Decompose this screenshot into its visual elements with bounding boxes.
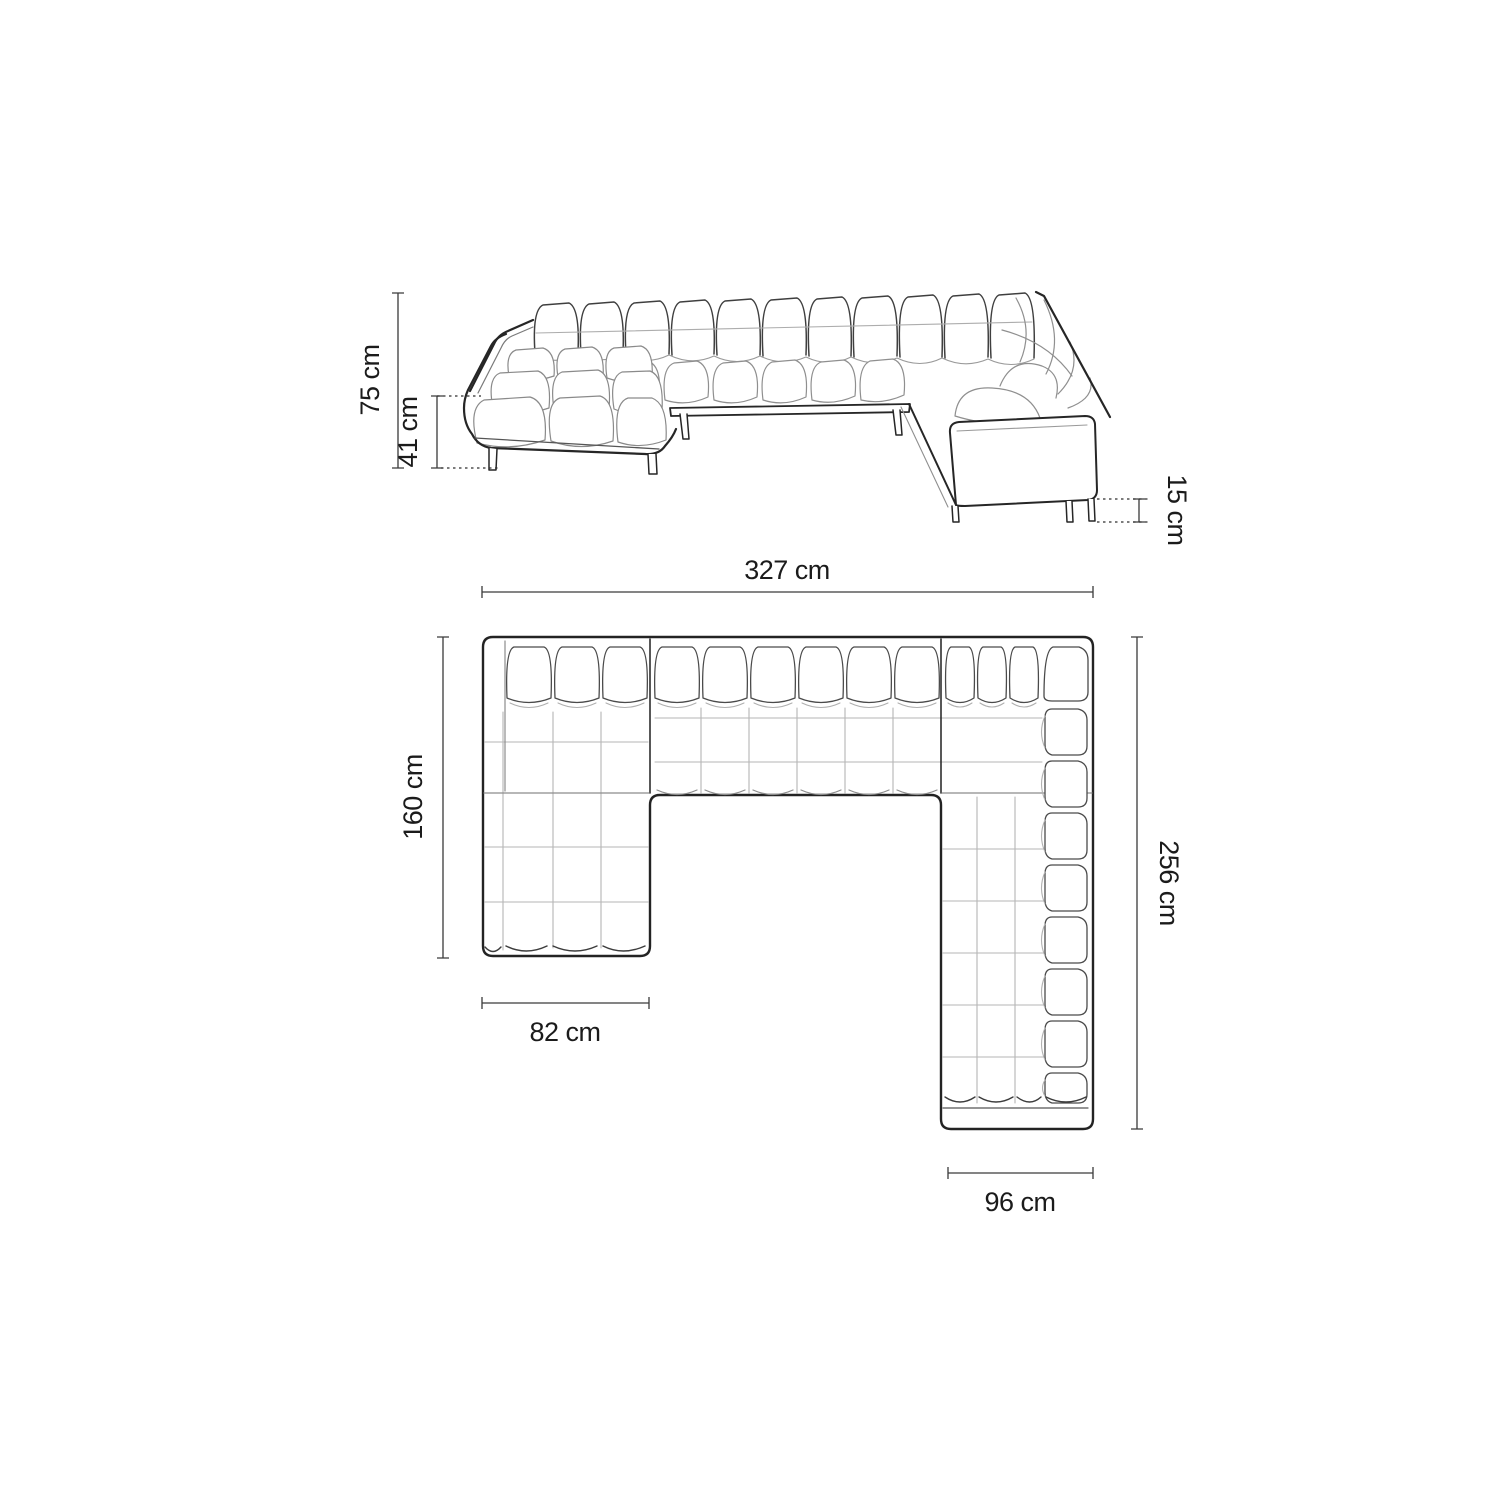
- dim-right-width: 96 cm: [948, 1167, 1093, 1217]
- dim-chaise-depth-label: 160 cm: [398, 754, 428, 840]
- dim-right-depth-label: 256 cm: [1154, 840, 1184, 926]
- chaise-cushions: [474, 346, 666, 447]
- plan-outline: [483, 637, 1093, 1129]
- dim-right-width-label: 96 cm: [984, 1187, 1055, 1217]
- dim-seat-height-label: 41 cm: [393, 396, 423, 467]
- dim-total-width: 327 cm: [482, 555, 1093, 598]
- back-cushions: [534, 293, 1034, 358]
- dim-chaise-depth: 160 cm: [398, 637, 449, 958]
- seat-front-rail: [670, 404, 910, 416]
- dim-total-height-label: 75 cm: [355, 344, 385, 415]
- return-front-edge: [909, 404, 956, 505]
- dim-total-width-label: 327 cm: [744, 555, 830, 585]
- dim-chaise-width: 82 cm: [482, 997, 649, 1047]
- perspective-view: [464, 292, 1110, 522]
- plan-right-strip-cushions: [1045, 709, 1087, 1103]
- return-front-edge-inner: [901, 407, 948, 507]
- plan-view: [483, 637, 1093, 1129]
- dim-leg-height-label: 15 cm: [1162, 474, 1192, 545]
- dim-chaise-width-label: 82 cm: [529, 1017, 600, 1047]
- dim-leg-height: 15 cm: [1097, 474, 1192, 545]
- dim-right-depth: 256 cm: [1131, 637, 1184, 1129]
- return-arm-panel: [950, 416, 1097, 506]
- sofa-dimension-diagram: 75 cm 41 cm 15 cm 327 cm 160 cm 82 cm: [0, 0, 1500, 1500]
- diagram-canvas: 75 cm 41 cm 15 cm 327 cm 160 cm 82 cm: [0, 0, 1500, 1500]
